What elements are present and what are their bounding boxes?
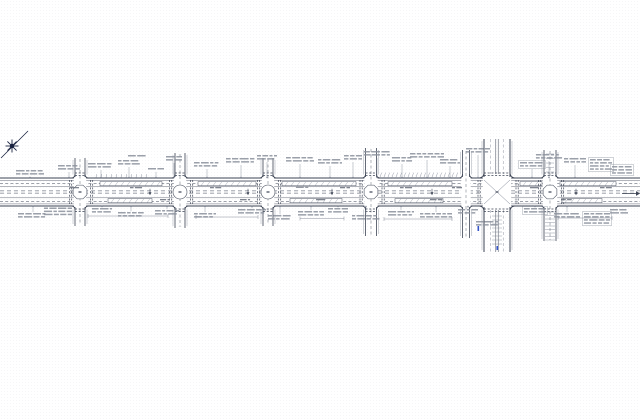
annotation-cluster — [316, 199, 325, 200]
annotation-cluster — [226, 158, 254, 178]
annotation-cluster — [44, 208, 72, 216]
annotation-cluster — [268, 206, 291, 220]
annotations — [16, 148, 634, 226]
annotation-cluster — [392, 157, 412, 178]
annotation-cluster — [410, 153, 444, 178]
annotation-cluster — [160, 199, 170, 200]
annotation-cluster — [128, 155, 146, 157]
utility-marks — [478, 226, 499, 250]
annotation-cluster — [210, 187, 221, 188]
annotation-cluster — [388, 206, 414, 216]
annotation-cluster — [70, 187, 79, 188]
annotation-cluster — [344, 155, 362, 178]
annotation-cluster — [610, 209, 628, 214]
annotation-cluster — [318, 159, 342, 178]
annotation-cluster — [194, 206, 216, 218]
annotation-cluster — [194, 162, 218, 178]
pavement-arrows — [149, 189, 578, 196]
annotation-cluster — [18, 206, 46, 218]
utility-mark — [478, 226, 480, 231]
annotation-cluster — [564, 158, 586, 178]
annotation-cluster — [600, 187, 612, 188]
annotation-cluster — [530, 187, 538, 188]
annotation-cluster — [611, 165, 634, 176]
plan-sheet — [0, 0, 640, 420]
annotation-cluster — [589, 158, 614, 172]
annotation-cluster — [440, 159, 460, 178]
annotation-cluster — [430, 199, 442, 200]
annotation-cluster — [240, 199, 250, 200]
annotation-cluster — [364, 151, 390, 178]
annotation-cluster — [88, 163, 112, 178]
matchline-arrow-icon — [622, 191, 640, 196]
annotation-cluster — [296, 187, 308, 188]
annotation-cluster — [519, 161, 546, 179]
north-arrow-icon — [1, 131, 28, 158]
annotation-cluster — [92, 206, 112, 213]
annotation-cluster — [452, 187, 462, 188]
annotation-cluster — [148, 168, 164, 178]
annotation-cluster — [166, 156, 182, 178]
annotation-cluster — [340, 187, 350, 188]
site-plan-svg — [0, 0, 640, 420]
annotation-cluster — [298, 206, 324, 216]
utility-mark — [497, 246, 499, 250]
cross-street — [360, 148, 384, 236]
annotation-cluster — [58, 165, 80, 178]
annotation-cluster — [286, 157, 314, 178]
cross-street — [170, 153, 193, 228]
annotation-cluster — [118, 206, 144, 217]
annotation-cluster — [400, 187, 412, 188]
dimension-lines — [88, 214, 612, 221]
annotation-cluster — [328, 206, 348, 213]
annotation-cluster — [16, 170, 44, 178]
annotation-cluster — [583, 212, 612, 226]
annotation-cluster — [476, 221, 498, 226]
annotation-cluster — [257, 155, 277, 178]
annotation-cluster — [130, 187, 142, 188]
annotation-cluster — [420, 206, 452, 218]
cross-street — [539, 150, 564, 241]
